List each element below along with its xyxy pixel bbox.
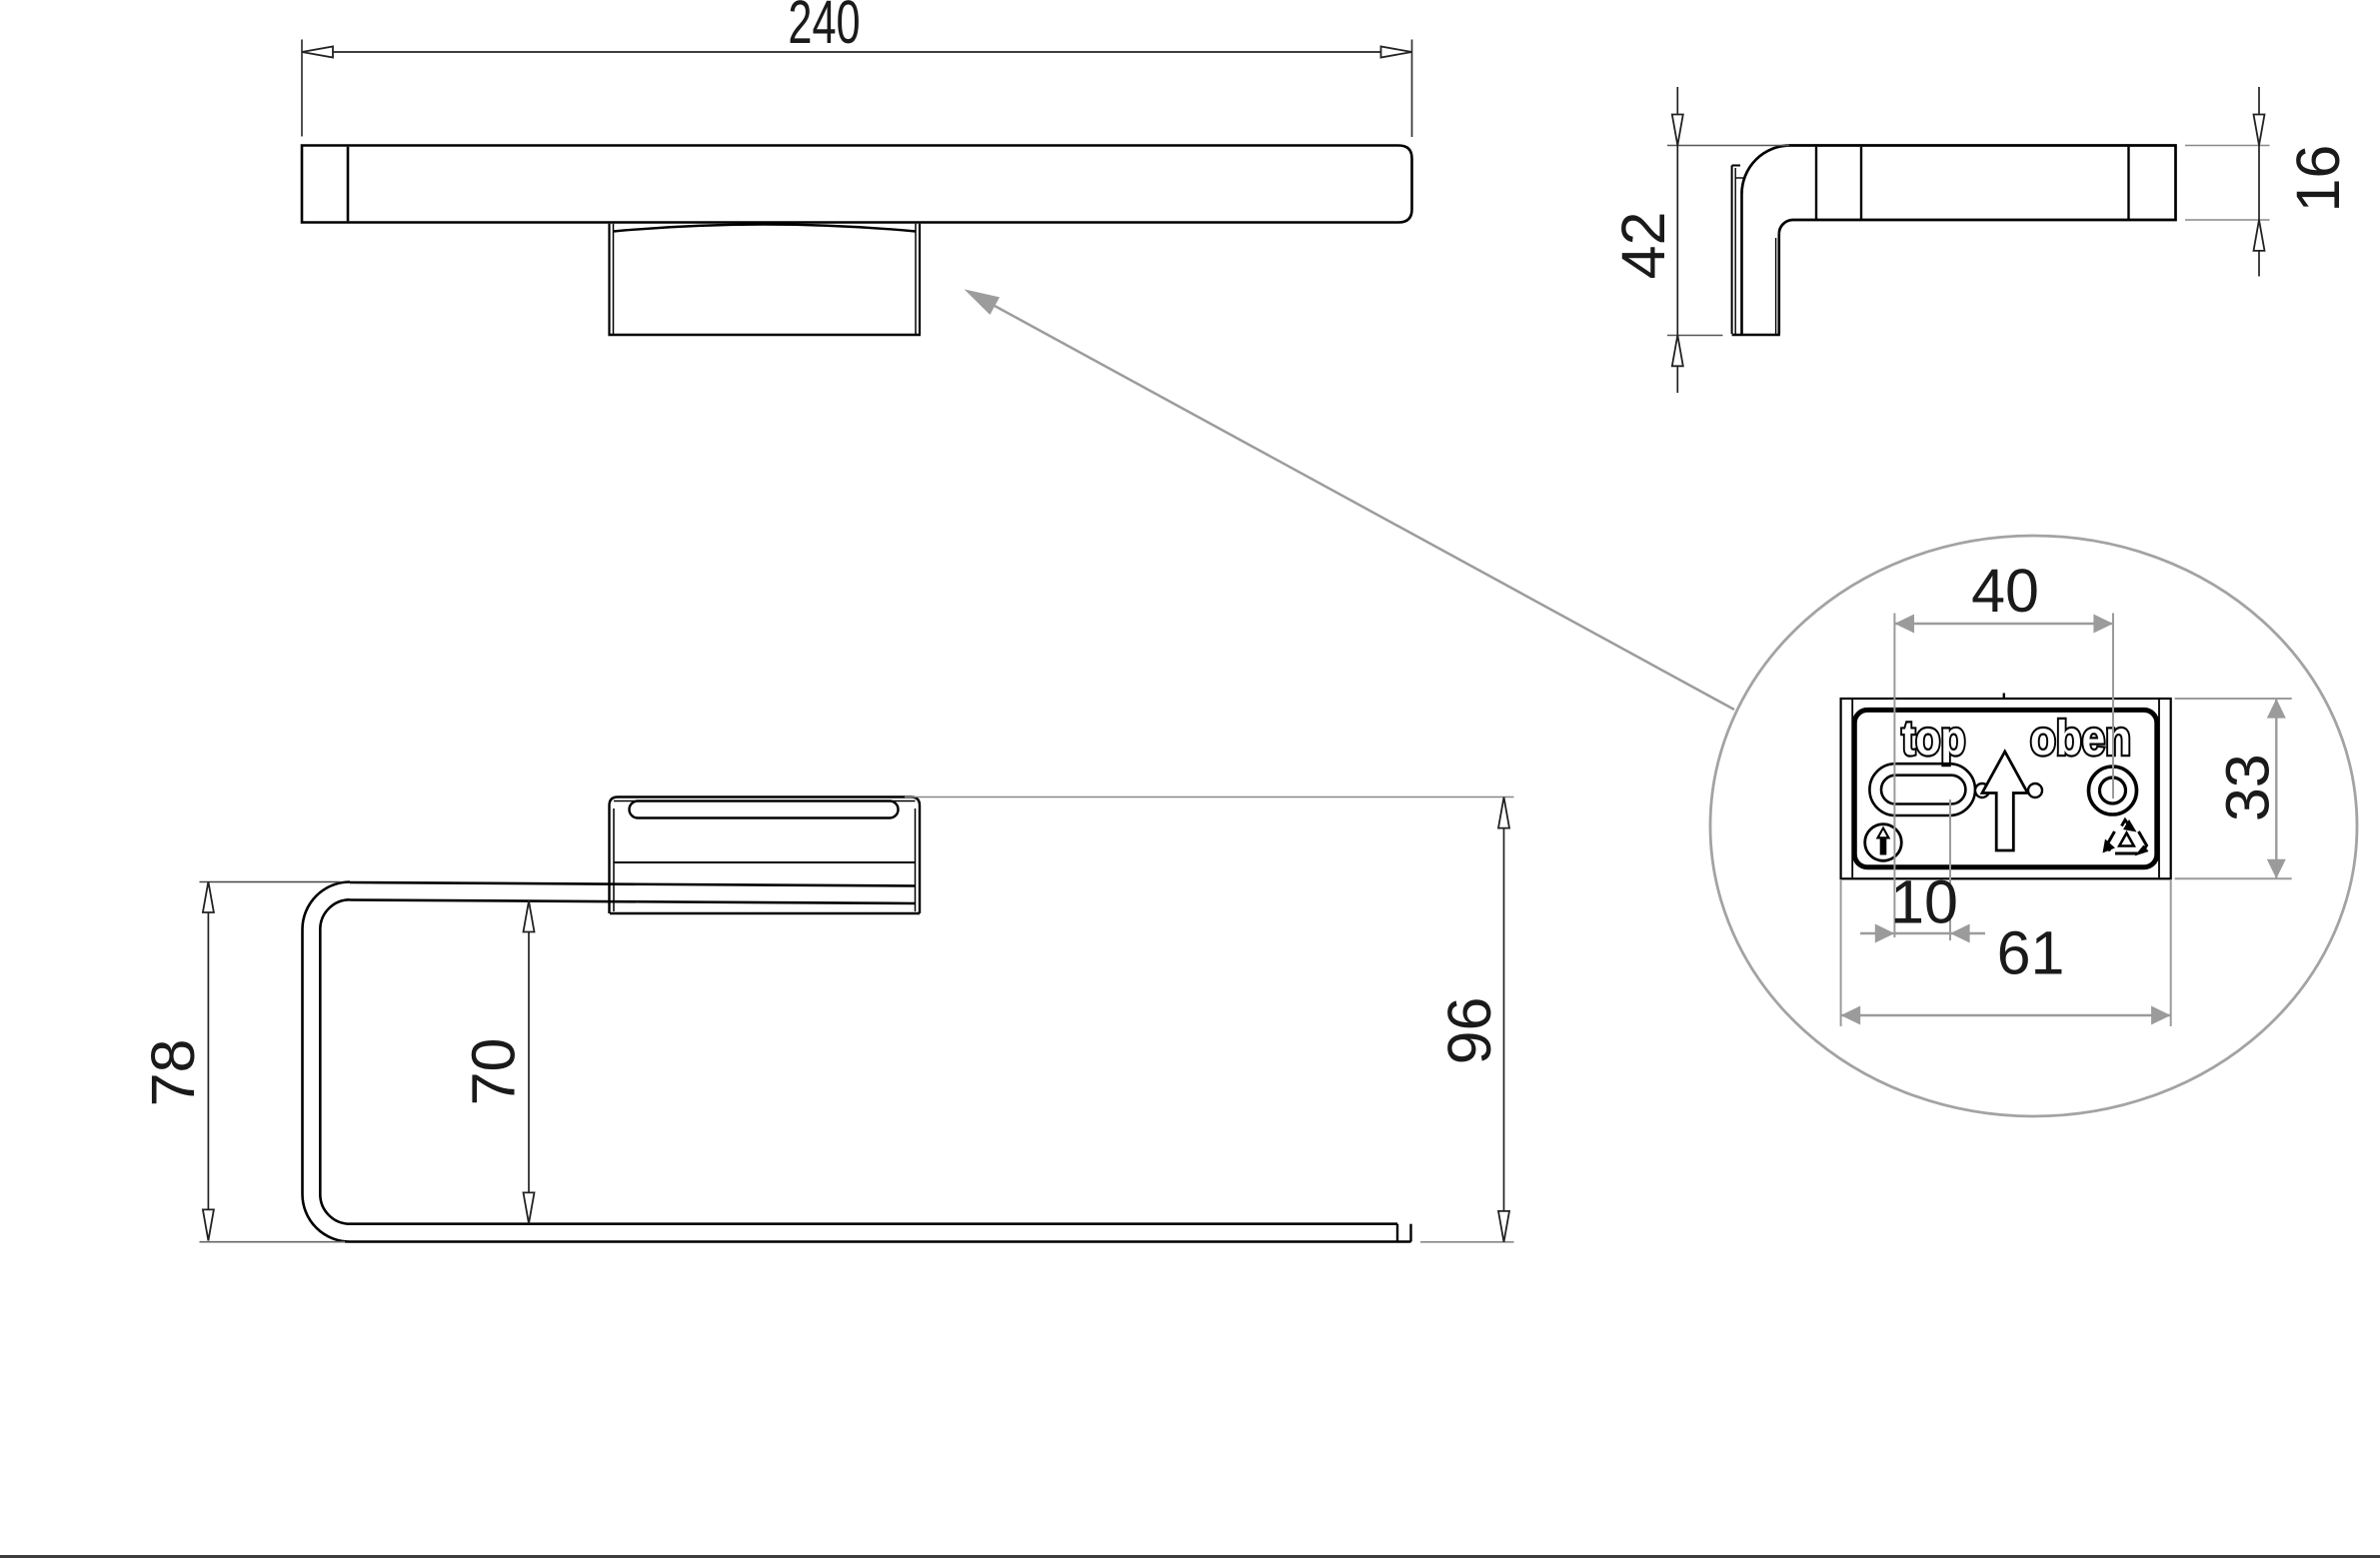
svg-text:16: 16 [2284,145,2352,213]
svg-text:40: 40 [1971,557,2039,625]
svg-text:oben: oben [2030,713,2131,766]
svg-text:33: 33 [2214,754,2282,821]
svg-text:61: 61 [1997,919,2065,987]
svg-text:70: 70 [460,1038,528,1106]
svg-text:42: 42 [1609,212,1677,280]
svg-text:96: 96 [1435,997,1503,1065]
svg-text:top: top [1902,713,1966,766]
svg-text:240: 240 [788,0,860,57]
svg-text:78: 78 [139,1039,207,1107]
svg-text:10: 10 [1890,868,1958,936]
